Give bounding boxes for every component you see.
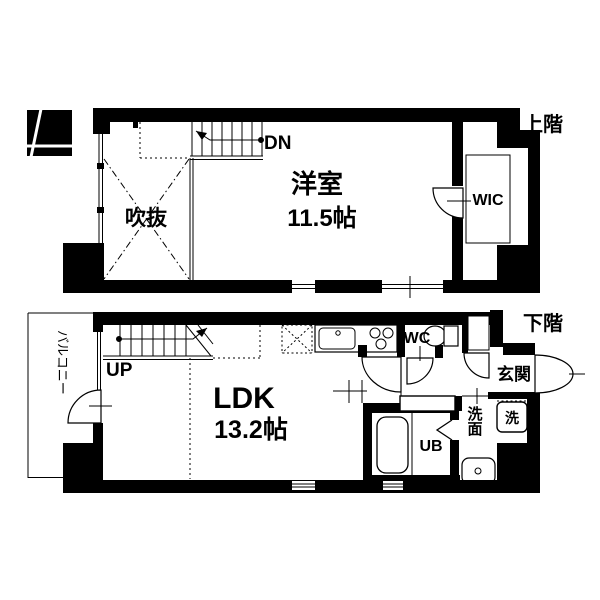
bedroom-label: 洋室 (291, 169, 343, 199)
entry-closet (468, 316, 489, 350)
wall (93, 108, 110, 134)
washroom-sliding-door (400, 396, 455, 411)
bath-folding-door (437, 420, 452, 440)
upper-floor-label: 上階 (523, 113, 563, 136)
wall (497, 443, 540, 490)
lower-floor-label: 下階 (523, 312, 563, 335)
wall (133, 122, 138, 128)
wc-door-arc (407, 358, 433, 384)
window (382, 280, 443, 293)
upper-left-window (99, 134, 103, 243)
void-label: 吹抜 (125, 206, 168, 230)
wall-wic-divider (452, 216, 463, 280)
laundry-label: 洗 (505, 410, 519, 426)
window (383, 481, 403, 490)
wall-ub (363, 403, 372, 483)
basin-drain (475, 468, 481, 474)
washroom-label: 洗面 (466, 405, 483, 437)
wall (528, 148, 540, 245)
wall (93, 312, 103, 332)
stove-burner (383, 328, 393, 338)
wall-wic-divider (452, 122, 463, 186)
stair-dotted-landing (140, 122, 190, 158)
wall (93, 423, 103, 445)
closet-door-arc (464, 353, 489, 378)
stair-direction-arrow (196, 131, 264, 143)
ldk-size-label: 13.2帖 (214, 416, 288, 444)
lower-stairs (103, 325, 213, 360)
bath-label: UB (419, 438, 442, 455)
entrance-label: 玄関 (497, 364, 531, 384)
wall (497, 108, 520, 148)
north-compass: N (27, 109, 72, 157)
wall (358, 345, 367, 357)
stove-burner (370, 328, 380, 338)
faucet (336, 331, 340, 335)
floorplan-canvas: N (0, 0, 600, 600)
wall (488, 392, 535, 399)
stairs-up-label: UP (106, 360, 133, 381)
upper-stairs (140, 122, 264, 160)
upper-floor-plan: N (27, 108, 563, 298)
entrance-door-arc (535, 355, 573, 393)
bathtub (377, 417, 408, 473)
north-label: N (46, 116, 58, 135)
wall (97, 312, 503, 325)
wall (455, 396, 462, 411)
toilet-tank (444, 326, 458, 346)
stair-treads (120, 325, 186, 356)
stove-burner (376, 339, 386, 349)
wall (490, 310, 503, 347)
window (292, 481, 315, 490)
wall (462, 318, 468, 353)
wall (93, 108, 505, 122)
window (292, 280, 315, 293)
wic-door-arc (433, 188, 463, 218)
hall-door-arc (362, 357, 401, 392)
lower-floor-plan: LDK 13.2帖 バルコニー UP WC 玄関 洗 洗面 UB 下階 (28, 310, 585, 493)
wall (503, 343, 535, 355)
wic-label: WIC (472, 192, 504, 209)
kitchen-counter (315, 325, 397, 352)
floorplan-page: N (0, 0, 600, 600)
wall (435, 345, 443, 358)
wall-ub (363, 475, 460, 482)
bedroom-size-label: 11.5帖 (287, 205, 356, 232)
balcony-label: バルコニー (55, 330, 70, 395)
fridge-space (282, 325, 312, 353)
ldk-label: LDK (213, 382, 275, 415)
wall (63, 243, 104, 293)
wc-label: WC (404, 330, 431, 347)
stairs-dn-label: DN (264, 133, 291, 154)
winder-tread (186, 325, 211, 356)
